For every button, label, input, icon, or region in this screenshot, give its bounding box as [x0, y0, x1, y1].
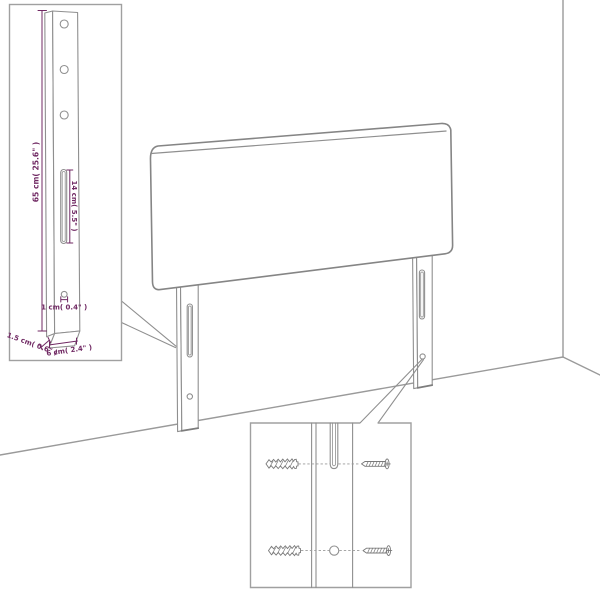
detail-slot-outline [330, 423, 338, 469]
hole-diameter-label: 1 cm( 0.4" ) [41, 304, 87, 312]
diagram-canvas: 65 cm( 25.6" ) 14 cm( 5.5" ) 1 cm( 0.4" … [0, 0, 600, 600]
slot-length-label: 14 cm( 5.5" ) [70, 181, 78, 232]
detail-leg [45, 11, 80, 348]
leg-height-label: 65 cm( 25.6" ) [32, 142, 41, 203]
detail-leg-strip [312, 423, 353, 588]
headboard-left-leg [177, 283, 199, 432]
wall-plug-top [266, 459, 298, 469]
headboard [150, 123, 452, 431]
hardware-row-top [266, 459, 390, 469]
screw-bottom [363, 546, 392, 556]
leg-detail-inset: 65 cm( 25.6" ) 14 cm( 5.5" ) 1 cm( 0.4" … [6, 5, 122, 361]
left-callout-wedge [122, 301, 177, 348]
headboard-panel [150, 123, 452, 289]
product-diagram: 65 cm( 25.6" ) 14 cm( 5.5" ) 1 cm( 0.4" … [0, 0, 600, 600]
headboard-right-leg [413, 255, 433, 389]
floor-edge-right [563, 357, 600, 375]
screw-top [362, 459, 391, 469]
floor-edge-left [0, 357, 563, 455]
wall-plug-bottom [269, 546, 301, 556]
detail-mount-hole [330, 546, 339, 555]
hardware-detail-inset [251, 423, 412, 588]
